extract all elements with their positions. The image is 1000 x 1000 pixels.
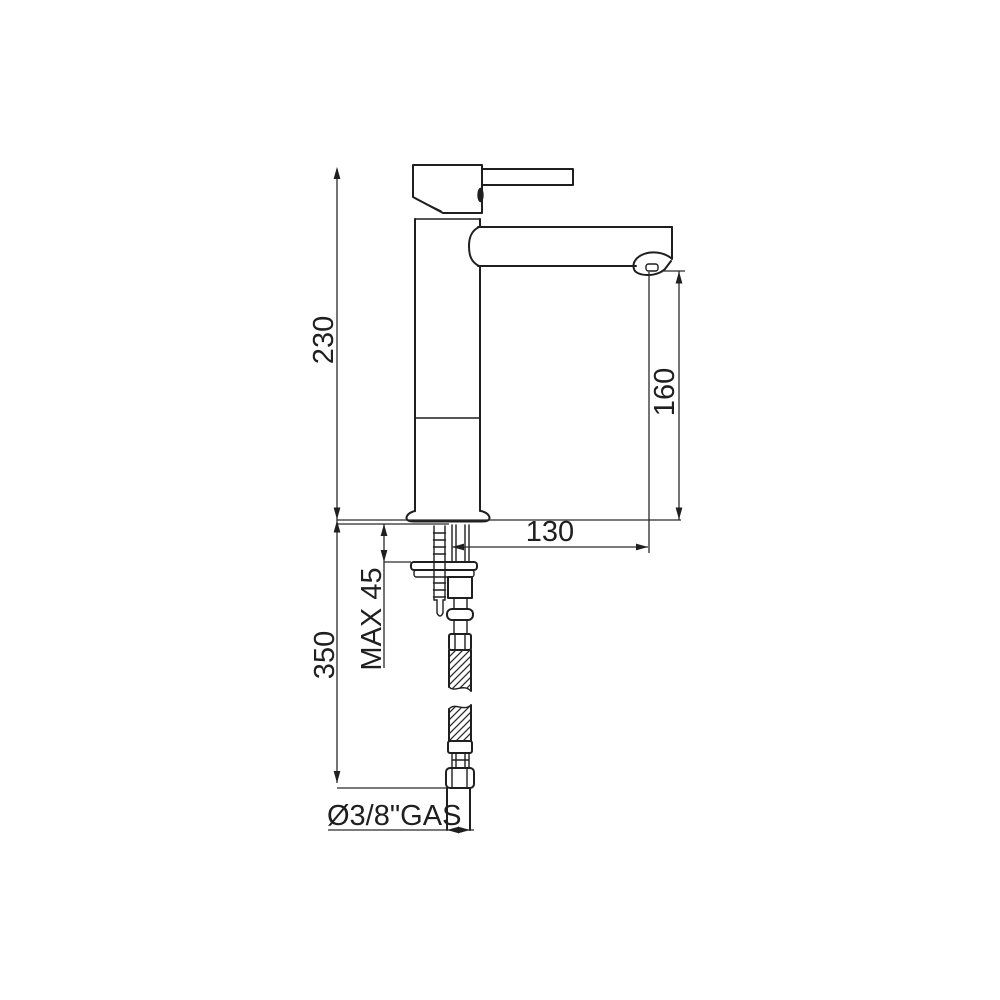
hose-connector [452, 753, 469, 768]
hose-nut [449, 634, 471, 650]
dim-max45-label: MAX 45 [356, 567, 388, 670]
flex-hose-upper [449, 650, 471, 691]
spout-joint-arc [469, 227, 479, 266]
collar-ring [447, 609, 473, 620]
dim-gas-label: Ø3/8"GAS [327, 800, 461, 832]
hex-fitting [446, 768, 474, 788]
pivot-screw-icon [477, 188, 483, 202]
flex-hose-lower [449, 705, 471, 741]
dim-160-label: 160 [649, 368, 681, 416]
dim-gas-connection: Ø3/8"GAS [327, 800, 474, 833]
faucet-body-group [407, 165, 673, 522]
handle-cap [413, 165, 482, 213]
mounting-plate [411, 562, 477, 570]
dim-230: 230 [308, 167, 340, 520]
stud-tip [434, 600, 445, 616]
under-counter-group [411, 525, 477, 830]
dim-230-label: 230 [308, 316, 340, 364]
faucet-technical-drawing: 230 350 MAX 45 160 [0, 0, 1000, 1000]
valve-neck-lower [454, 620, 467, 634]
supply-pipe [452, 525, 469, 562]
valve-body [448, 577, 472, 598]
lever-handle [482, 169, 573, 185]
valve-neck-upper [454, 598, 467, 609]
hose-ferrule [448, 741, 472, 753]
dim-350-label: 350 [309, 631, 341, 679]
mounting-gasket [414, 570, 474, 577]
dim-max45: MAX 45 [356, 524, 411, 671]
dim-130-label: 130 [526, 516, 574, 548]
drawing-canvas: 230 350 MAX 45 160 [0, 0, 1000, 1000]
handle-cap-chamfer-line [416, 199, 441, 211]
dim-160: 160 [649, 271, 685, 520]
aerator-tip [646, 264, 658, 271]
